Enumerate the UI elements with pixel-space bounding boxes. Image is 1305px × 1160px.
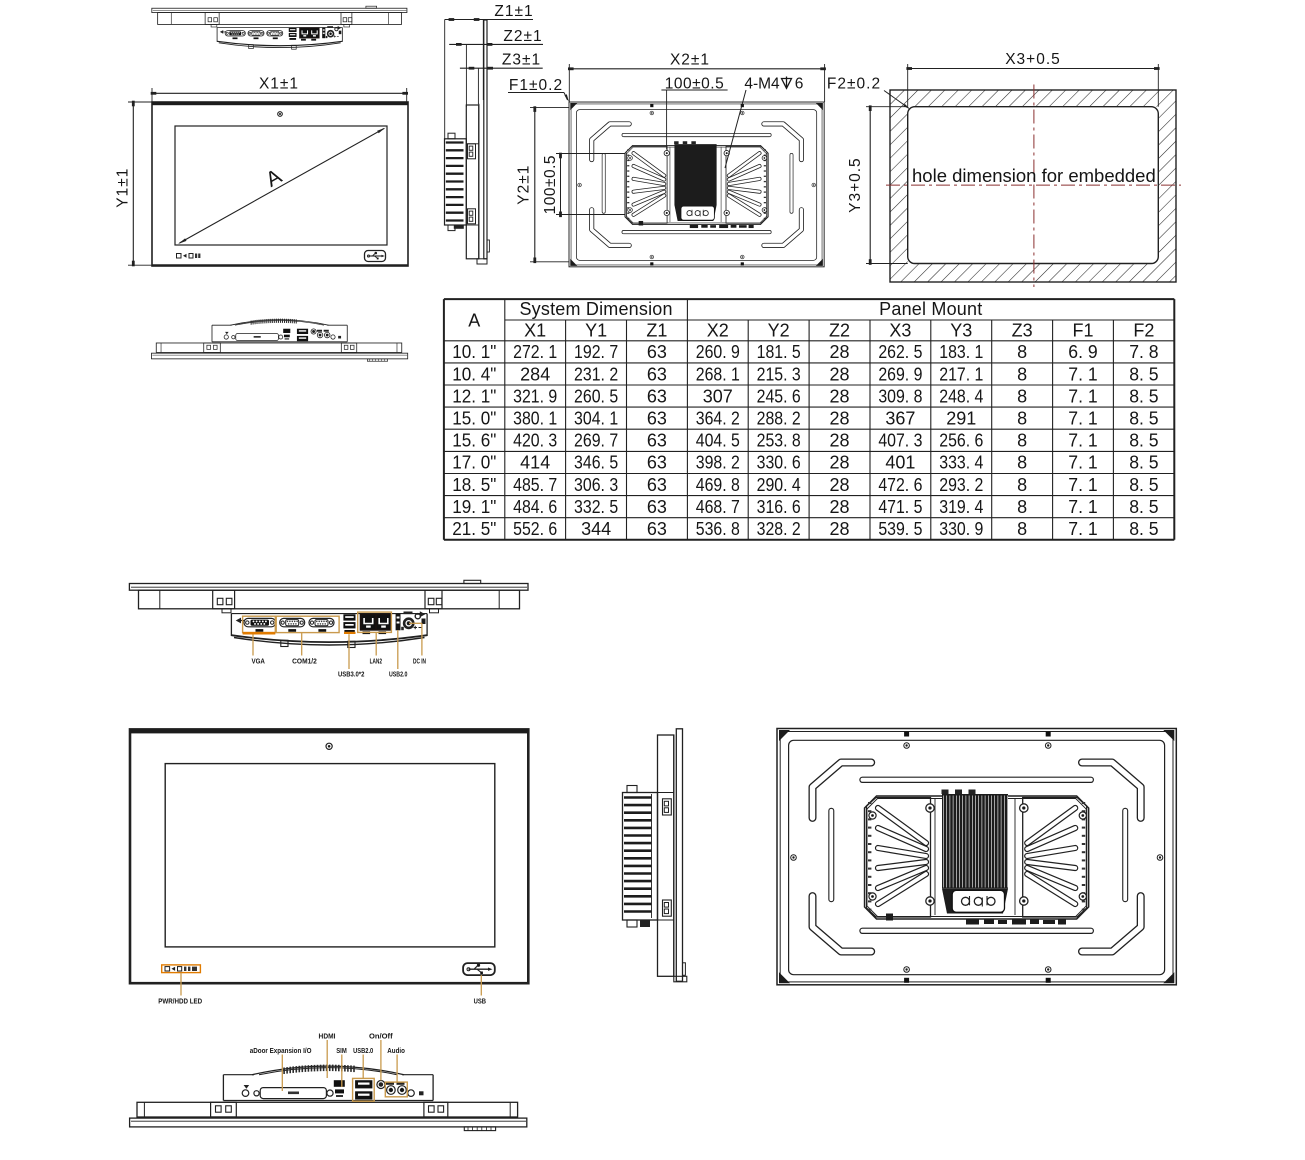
svg-text:63: 63 (647, 497, 667, 517)
svg-text:404. 5: 404. 5 (696, 431, 740, 451)
svg-text:Z1: Z1 (646, 321, 667, 341)
svg-text:X1±1: X1±1 (259, 76, 299, 93)
svg-text:262. 5: 262. 5 (878, 342, 922, 362)
svg-text:Z1±1: Z1±1 (494, 3, 533, 20)
svg-text:8: 8 (1017, 519, 1027, 539)
svg-text:15. 0": 15. 0" (452, 409, 496, 429)
svg-text:192. 7: 192. 7 (574, 342, 618, 362)
svg-text:552. 6: 552. 6 (513, 519, 557, 539)
svg-text:420. 3: 420. 3 (513, 431, 557, 451)
svg-text:8: 8 (1017, 431, 1027, 451)
svg-text:367: 367 (885, 409, 915, 429)
svg-text:28: 28 (829, 453, 849, 473)
svg-text:231. 2: 231. 2 (574, 364, 618, 384)
svg-text:472. 6: 472. 6 (878, 475, 922, 495)
svg-text:63: 63 (647, 519, 667, 539)
svg-text:On/Off: On/Off (369, 1031, 393, 1040)
svg-text:7. 1: 7. 1 (1068, 519, 1097, 539)
svg-text:330. 6: 330. 6 (757, 453, 801, 473)
svg-text:539. 5: 539. 5 (878, 519, 922, 539)
svg-text:7. 1: 7. 1 (1068, 497, 1097, 517)
svg-text:63: 63 (647, 453, 667, 473)
svg-text:269. 9: 269. 9 (878, 364, 922, 384)
svg-text:181. 5: 181. 5 (757, 342, 801, 362)
svg-text:PWR/HDD LED: PWR/HDD LED (158, 996, 202, 1005)
svg-text:380. 1: 380. 1 (513, 409, 557, 429)
svg-text:X3+0.5: X3+0.5 (1005, 51, 1061, 68)
svg-text:USB2.0: USB2.0 (389, 669, 407, 678)
svg-text:X2: X2 (707, 321, 729, 341)
svg-text:19. 1": 19. 1" (452, 497, 496, 517)
svg-text:309. 8: 309. 8 (878, 386, 922, 406)
svg-text:F1: F1 (1072, 321, 1093, 341)
svg-text:28: 28 (829, 497, 849, 517)
svg-text:248. 4: 248. 4 (939, 386, 983, 406)
svg-text:F1±0.2: F1±0.2 (509, 77, 563, 94)
svg-text:17. 0": 17. 0" (452, 453, 496, 473)
svg-text:7. 1: 7. 1 (1068, 409, 1097, 429)
svg-text:28: 28 (829, 409, 849, 429)
svg-text:Panel Mount: Panel Mount (879, 299, 982, 319)
svg-text:8. 5: 8. 5 (1129, 409, 1158, 429)
svg-text:Y1: Y1 (585, 321, 607, 341)
svg-text:COM1/2: COM1/2 (292, 656, 317, 665)
svg-text:HDMI: HDMI (319, 1031, 336, 1040)
svg-text:10. 4": 10. 4" (452, 364, 496, 384)
svg-text:F2: F2 (1133, 321, 1154, 341)
svg-text:X2±1: X2±1 (670, 52, 710, 69)
svg-text:291: 291 (946, 409, 976, 429)
svg-text:63: 63 (647, 431, 667, 451)
svg-text:USB3.0*2: USB3.0*2 (338, 669, 364, 678)
svg-text:8. 5: 8. 5 (1129, 431, 1158, 451)
svg-text:Z3±1: Z3±1 (502, 52, 541, 69)
svg-text:63: 63 (647, 342, 667, 362)
svg-text:8: 8 (1017, 386, 1027, 406)
svg-text:4-M4: 4-M4 (744, 76, 780, 93)
svg-text:268. 1: 268. 1 (696, 364, 740, 384)
svg-text:Y3: Y3 (950, 321, 972, 341)
svg-text:aDoor Expansion I/O: aDoor Expansion I/O (250, 1046, 312, 1055)
svg-text:6: 6 (795, 76, 804, 93)
svg-text:364. 2: 364. 2 (696, 409, 740, 429)
svg-text:7. 8: 7. 8 (1129, 342, 1158, 362)
svg-text:USB: USB (474, 996, 487, 1005)
svg-text:F2±0.2: F2±0.2 (827, 76, 881, 93)
svg-text:293. 2: 293. 2 (939, 475, 983, 495)
svg-text:8: 8 (1017, 453, 1027, 473)
svg-text:401: 401 (885, 453, 915, 473)
svg-text:183. 1: 183. 1 (939, 342, 983, 362)
svg-text:332. 5: 332. 5 (574, 497, 618, 517)
svg-text:321. 9: 321. 9 (513, 386, 557, 406)
svg-text:A: A (468, 311, 480, 331)
svg-text:8: 8 (1017, 364, 1027, 384)
svg-text:28: 28 (829, 342, 849, 362)
svg-text:7. 1: 7. 1 (1068, 386, 1097, 406)
svg-text:256. 6: 256. 6 (939, 431, 983, 451)
svg-text:X1: X1 (524, 321, 546, 341)
svg-text:8. 5: 8. 5 (1129, 364, 1158, 384)
svg-text:536. 8: 536. 8 (696, 519, 740, 539)
svg-text:28: 28 (829, 431, 849, 451)
svg-text:28: 28 (829, 386, 849, 406)
svg-text:468. 7: 468. 7 (696, 497, 740, 517)
svg-text:VGA: VGA (251, 656, 265, 665)
svg-text:8: 8 (1017, 497, 1027, 517)
svg-text:344: 344 (581, 519, 611, 539)
svg-text:7. 1: 7. 1 (1068, 453, 1097, 473)
svg-text:272. 1: 272. 1 (513, 342, 557, 362)
svg-text:18. 5": 18. 5" (452, 475, 496, 495)
svg-text:63: 63 (647, 386, 667, 406)
svg-text:8. 5: 8. 5 (1129, 519, 1158, 539)
svg-text:Y2: Y2 (768, 321, 790, 341)
svg-text:8. 5: 8. 5 (1129, 386, 1158, 406)
svg-text:Y3+0.5: Y3+0.5 (847, 157, 864, 213)
svg-text:Z3: Z3 (1012, 321, 1033, 341)
svg-text:290. 4: 290. 4 (757, 475, 801, 495)
svg-text:hole dimension for embedded: hole dimension for embedded (912, 165, 1156, 186)
svg-text:63: 63 (647, 409, 667, 429)
svg-text:245. 6: 245. 6 (757, 386, 801, 406)
svg-text:15. 6": 15. 6" (452, 431, 496, 451)
svg-text:319. 4: 319. 4 (939, 497, 983, 517)
svg-text:260. 9: 260. 9 (696, 342, 740, 362)
svg-text:8. 5: 8. 5 (1129, 453, 1158, 473)
svg-text:Y1±1: Y1±1 (115, 168, 132, 208)
svg-text:100±0.5: 100±0.5 (542, 155, 559, 214)
svg-text:485. 7: 485. 7 (513, 475, 557, 495)
svg-text:215. 3: 215. 3 (757, 364, 801, 384)
svg-text:346. 5: 346. 5 (574, 453, 618, 473)
svg-text:LAN2: LAN2 (370, 656, 382, 665)
svg-text:8: 8 (1017, 475, 1027, 495)
svg-text:28: 28 (829, 475, 849, 495)
svg-text:288. 2: 288. 2 (757, 409, 801, 429)
svg-text:217. 1: 217. 1 (939, 364, 983, 384)
svg-text:284: 284 (520, 364, 550, 384)
svg-text:328. 2: 328. 2 (757, 519, 801, 539)
svg-text:Audio: Audio (387, 1046, 405, 1055)
svg-text:System Dimension: System Dimension (519, 299, 672, 319)
svg-text:469. 8: 469. 8 (696, 475, 740, 495)
svg-text:471. 5: 471. 5 (878, 497, 922, 517)
svg-text:407. 3: 407. 3 (878, 431, 922, 451)
svg-text:269. 7: 269. 7 (574, 431, 618, 451)
svg-text:8. 5: 8. 5 (1129, 497, 1158, 517)
svg-text:414: 414 (520, 453, 550, 473)
svg-text:7. 1: 7. 1 (1068, 475, 1097, 495)
svg-text:Z2: Z2 (829, 321, 850, 341)
svg-text:398. 2: 398. 2 (696, 453, 740, 473)
svg-text:253. 8: 253. 8 (757, 431, 801, 451)
svg-text:Y2±1: Y2±1 (516, 165, 533, 205)
svg-text:28: 28 (829, 364, 849, 384)
svg-text:484. 6: 484. 6 (513, 497, 557, 517)
svg-text:330. 9: 330. 9 (939, 519, 983, 539)
svg-text:8. 5: 8. 5 (1129, 475, 1158, 495)
svg-text:307: 307 (703, 386, 733, 406)
svg-text:USB2.0: USB2.0 (353, 1046, 373, 1055)
svg-text:7. 1: 7. 1 (1068, 431, 1097, 451)
svg-text:7. 1: 7. 1 (1068, 364, 1097, 384)
svg-text:6. 9: 6. 9 (1068, 342, 1097, 362)
svg-text:28: 28 (829, 519, 849, 539)
svg-text:260. 5: 260. 5 (574, 386, 618, 406)
svg-text:DC IN: DC IN (413, 656, 426, 665)
svg-text:SIM: SIM (336, 1046, 347, 1055)
svg-text:10. 1": 10. 1" (452, 342, 496, 362)
svg-text:X3: X3 (889, 321, 911, 341)
svg-text:8: 8 (1017, 342, 1027, 362)
svg-text:12. 1": 12. 1" (452, 386, 496, 406)
svg-text:8: 8 (1017, 409, 1027, 429)
svg-text:63: 63 (647, 364, 667, 384)
svg-text:316. 6: 316. 6 (757, 497, 801, 517)
svg-text:306. 3: 306. 3 (574, 475, 618, 495)
svg-text:333. 4: 333. 4 (939, 453, 983, 473)
svg-text:63: 63 (647, 475, 667, 495)
svg-text:304. 1: 304. 1 (574, 409, 618, 429)
svg-text:21. 5": 21. 5" (452, 519, 496, 539)
svg-text:Z2±1: Z2±1 (503, 28, 542, 45)
